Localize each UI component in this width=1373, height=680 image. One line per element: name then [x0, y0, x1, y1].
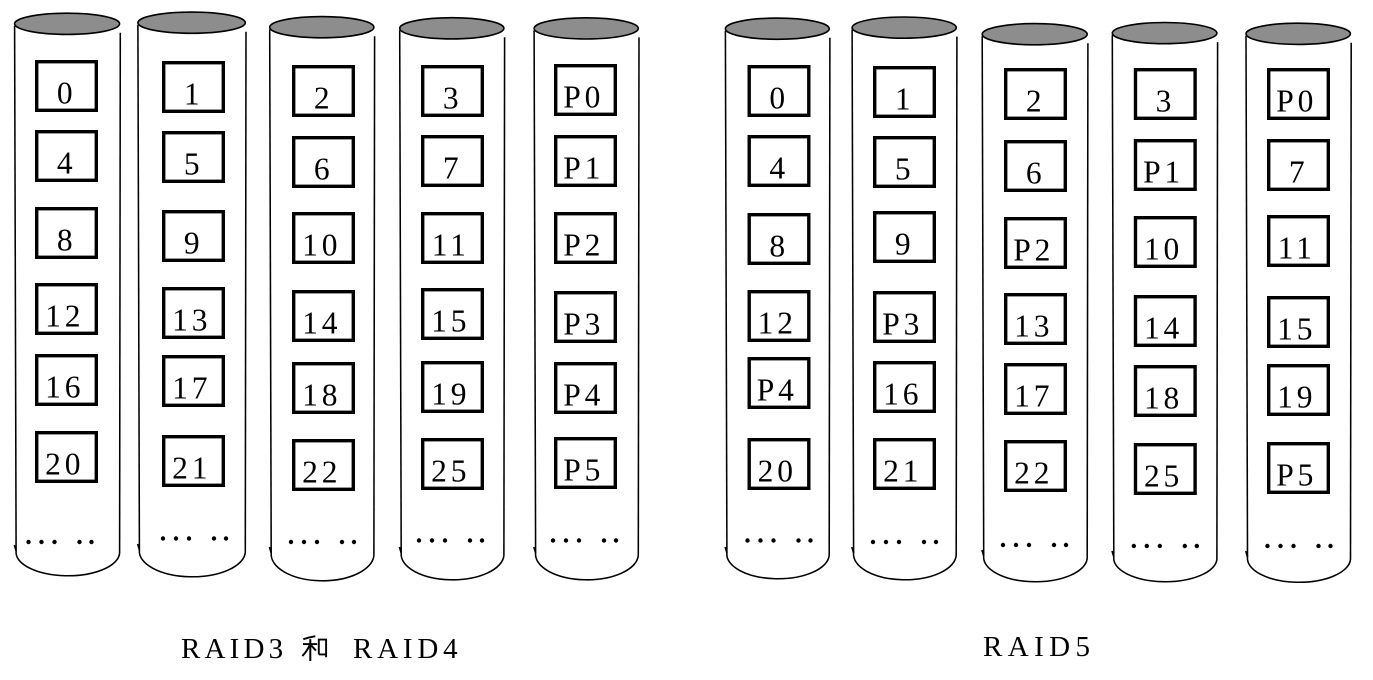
- svg-text:18: 18: [1144, 381, 1183, 416]
- svg-text:6: 6: [1026, 156, 1042, 191]
- svg-text:15: 15: [1277, 312, 1316, 347]
- svg-text:P3: P3: [563, 307, 604, 342]
- svg-text:16: 16: [45, 370, 84, 405]
- svg-text:RAID5: RAID5: [983, 631, 1095, 663]
- svg-text:P1: P1: [563, 151, 604, 186]
- svg-text:21: 21: [172, 451, 211, 486]
- svg-text:22: 22: [302, 455, 341, 490]
- svg-text:3: 3: [1156, 84, 1172, 119]
- svg-text:P2: P2: [1013, 233, 1054, 268]
- svg-text:4: 4: [769, 151, 785, 186]
- svg-text:20: 20: [45, 447, 84, 482]
- svg-text:0: 0: [769, 81, 785, 116]
- svg-text:P5: P5: [1276, 458, 1317, 493]
- svg-text:25: 25: [431, 454, 470, 489]
- svg-text:P1: P1: [1143, 155, 1184, 190]
- svg-text:P3: P3: [882, 307, 923, 342]
- svg-text:20: 20: [758, 454, 797, 489]
- svg-text:P4: P4: [757, 373, 798, 408]
- svg-text:11: 11: [1278, 231, 1316, 266]
- svg-text:0: 0: [57, 76, 73, 111]
- svg-text:P4: P4: [563, 378, 604, 413]
- svg-text:P0: P0: [1276, 84, 1317, 119]
- svg-text:RAID4: RAID4: [353, 633, 462, 665]
- svg-text:P2: P2: [563, 228, 604, 263]
- svg-text:19: 19: [431, 377, 470, 412]
- svg-text:3: 3: [443, 81, 459, 116]
- svg-text:1: 1: [184, 77, 200, 112]
- svg-text:10: 10: [302, 228, 341, 263]
- svg-text:RAID3: RAID3: [181, 633, 287, 665]
- svg-text:9: 9: [895, 227, 911, 262]
- svg-text:21: 21: [883, 454, 922, 489]
- svg-text:13: 13: [1014, 309, 1053, 344]
- svg-text:10: 10: [1144, 232, 1183, 267]
- svg-text:4: 4: [57, 146, 73, 181]
- svg-text:17: 17: [1014, 379, 1053, 414]
- svg-text:P5: P5: [563, 453, 604, 488]
- svg-text:5: 5: [184, 147, 200, 182]
- svg-text:16: 16: [883, 377, 922, 412]
- svg-text:12: 12: [758, 306, 797, 341]
- svg-text:11: 11: [432, 228, 470, 263]
- svg-text:25: 25: [1144, 459, 1183, 494]
- svg-text:14: 14: [302, 306, 341, 341]
- svg-text:7: 7: [443, 151, 459, 186]
- svg-text:18: 18: [302, 378, 341, 413]
- svg-text:19: 19: [1277, 380, 1316, 415]
- svg-text:6: 6: [314, 152, 330, 187]
- svg-text:12: 12: [45, 299, 84, 334]
- svg-text:7: 7: [1289, 155, 1305, 190]
- svg-text:5: 5: [895, 152, 911, 187]
- svg-text:2: 2: [314, 81, 330, 116]
- svg-text:15: 15: [431, 304, 470, 339]
- svg-text:17: 17: [172, 371, 211, 406]
- svg-text:22: 22: [1014, 456, 1053, 491]
- svg-text:8: 8: [769, 229, 785, 264]
- svg-text:9: 9: [184, 226, 200, 261]
- svg-text:2: 2: [1026, 84, 1042, 119]
- svg-text:P0: P0: [563, 80, 604, 115]
- svg-text:13: 13: [172, 303, 211, 338]
- svg-text:1: 1: [895, 82, 911, 117]
- svg-text:14: 14: [1144, 311, 1183, 346]
- svg-text:8: 8: [57, 223, 73, 258]
